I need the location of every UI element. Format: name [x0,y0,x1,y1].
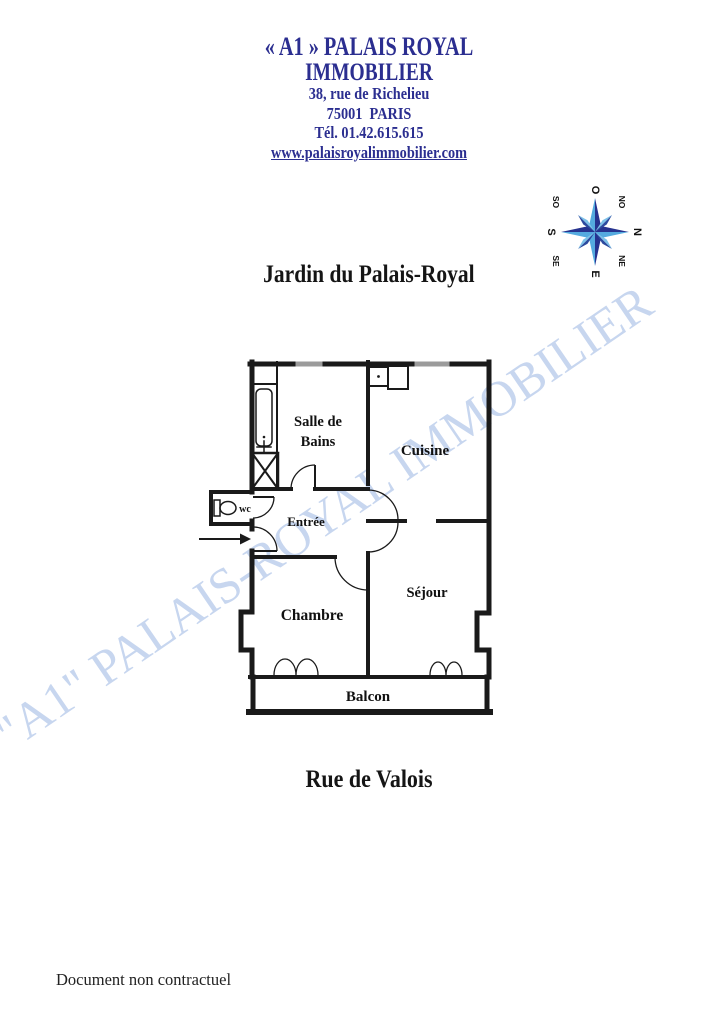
floor-plan: Salle de Bains Cuisine wc Entrée Chambre… [190,345,520,725]
document-page: "A1" PALAIS-ROYAL IMMOBILIER « A1 » PALA… [0,0,724,1024]
street-name-bottom: Rue de Valois [43,766,680,794]
wc-door-arc [253,497,274,518]
agency-website-link[interactable]: www.palaisroyalimmobilier.com [271,143,467,162]
ventilation-shaft [252,453,278,489]
room-label-bathroom-line1: Salle de [294,414,342,430]
agency-name-line1: « A1 » PALAIS ROYAL [92,33,646,61]
compass-label-west: O [589,186,601,195]
bedroom-door-arc [335,557,368,590]
compass-label-northwest: NO [617,196,627,209]
bathroom-door-arc [291,465,315,489]
room-label-entry: Entrée [287,514,325,529]
kitchen-sink [369,366,408,389]
agency-website-row: www.palaisroyalimmobilier.com [71,143,667,163]
entry-arrow [199,534,251,545]
door-swings [253,465,462,675]
entry-door-arc [253,527,277,551]
room-label-wc: wc [239,504,251,515]
footer-disclaimer: Document non contractuel [56,970,231,990]
agency-letterhead: « A1 » PALAIS ROYAL IMMOBILIER 38, rue d… [0,33,724,162]
agency-phone: Tél. 01.42.615.615 [71,123,667,143]
bathtub [256,389,272,452]
room-label-kitchen: Cuisine [401,443,450,459]
agency-name: « A1 » PALAIS ROYAL IMMOBILIER [92,33,646,84]
compass-label-north: N [631,228,643,236]
balcony-french-door-living [430,662,462,675]
room-label-balcony: Balcon [346,689,391,705]
room-label-bedroom: Chambre [281,607,344,624]
agency-city: 75001 PARIS [71,104,667,124]
balcony-french-door-bedroom [274,659,318,675]
toilet [214,500,236,516]
compass-label-southwest: SO [551,196,561,209]
agency-name-line2: IMMOBILIER [92,61,646,84]
room-label-bathroom-line2: Bains [301,434,336,450]
room-label-living: Séjour [406,585,448,601]
street-name-top: Jardin du Palais-Royal [51,261,674,289]
agency-street-address: 38, rue de Richelieu [71,84,667,104]
room-labels: Salle de Bains Cuisine wc Entrée Chambre… [239,414,449,705]
walls [211,362,490,712]
compass-label-south: S [545,228,557,235]
